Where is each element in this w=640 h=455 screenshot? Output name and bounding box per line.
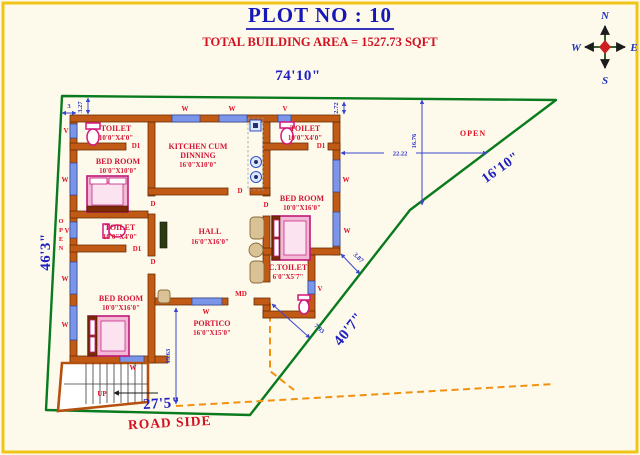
open-area-left-letter: E	[59, 236, 63, 243]
dim-16-76: 16.76	[411, 133, 418, 148]
bed-icon-bedroom-right	[272, 216, 310, 260]
plot-dim-top: 74'10"	[275, 68, 321, 84]
plot-dim-left: 46'3"	[38, 233, 54, 271]
door-label: D	[263, 201, 268, 209]
window-label: W	[62, 275, 69, 283]
window-top-2	[219, 115, 247, 122]
page-title: PLOT NO : 10	[248, 3, 392, 27]
svg-text:10'0"X10'0": 10'0"X10'0"	[99, 167, 137, 175]
plot-dim-right-lower: 40'7"	[331, 310, 367, 349]
room-bedroom-top-left: BED ROOM	[96, 157, 141, 166]
compass-south-label: S	[602, 75, 608, 87]
window-left-2	[70, 262, 77, 294]
page-subtitle: TOTAL BUILDING AREA = 1527.73 SQFT	[202, 35, 438, 49]
svg-text:10'0"X4'0": 10'0"X4'0"	[103, 233, 137, 241]
bed-icon-bedroom-top-left	[87, 176, 128, 212]
window-left-1	[70, 163, 77, 195]
vent-label: V	[63, 127, 68, 135]
bed-icon-bedroom-bottom-left	[88, 316, 129, 356]
room-c-toilet: C.TOILET	[269, 263, 308, 272]
vent-label: V	[317, 285, 322, 293]
plot-dim-bottom: 27'5"	[143, 395, 181, 413]
window-right-2	[333, 212, 340, 246]
svg-text:16'0"X10'0": 16'0"X10'0"	[179, 161, 217, 169]
svg-text:10'0"X16'0": 10'0"X16'0"	[283, 204, 321, 212]
main-door-label: MD	[235, 290, 247, 298]
open-area-right-label: OPEN	[460, 129, 486, 138]
room-kitchen: KITCHEN CUM	[169, 142, 228, 151]
window-label: W	[229, 105, 236, 113]
door1-label: D1	[317, 142, 326, 150]
dim-15-63: 15.63	[165, 348, 172, 363]
window-right-1	[333, 160, 340, 192]
vent-top	[278, 115, 291, 122]
svg-text:10'0"X4'0": 10'0"X4'0"	[288, 134, 322, 142]
vent-left-1	[70, 124, 77, 138]
window-left-3	[70, 306, 77, 340]
svg-text:10'0"X4'0": 10'0"X4'0"	[99, 134, 133, 142]
kitchen-sink-basin	[253, 123, 258, 128]
room-bedroom-right: BED ROOM	[280, 194, 325, 203]
svg-text:16'0"X15'0": 16'0"X15'0"	[193, 329, 231, 337]
door-leaf-icon	[160, 222, 167, 248]
floor-plan-page: PLOT NO : 10 TOTAL BUILDING AREA = 1527.…	[0, 0, 640, 455]
dim-3-87: 3.87	[352, 251, 366, 265]
open-area-left-letter: O	[58, 218, 63, 225]
dim-2-72: 2.72	[333, 102, 340, 113]
door1-label: D1	[132, 142, 141, 150]
kitchen-counter	[248, 118, 263, 190]
door-label: D	[150, 200, 155, 208]
plot-dim-right-upper: 16'10"	[479, 150, 522, 187]
floor-plan-drawing: PLOT NO : 10 TOTAL BUILDING AREA = 1527.…	[0, 0, 640, 455]
svg-text:6'0"X5'7": 6'0"X5'7"	[273, 273, 304, 281]
vent-ctoilet	[308, 281, 315, 294]
window-top-1	[172, 115, 200, 122]
toilet-icon-top-left	[86, 123, 100, 145]
open-area-left-letter: P	[59, 227, 63, 234]
door1-label: D1	[133, 245, 142, 253]
compass-north-label: N	[600, 10, 610, 22]
vent-left-2	[70, 222, 77, 238]
window-label: W	[182, 105, 189, 113]
compass-west-label: W	[571, 42, 582, 54]
room-toilet-top-left: TOILET	[101, 124, 132, 133]
window-hall-bottom	[192, 298, 222, 305]
compass-icon: N E S W	[571, 10, 638, 87]
room-toilet-mid-left: TOILET	[105, 223, 136, 232]
open-area-left-letter: N	[59, 245, 64, 252]
window-label: W	[344, 227, 351, 235]
svg-text:16'0"X16'0": 16'0"X16'0"	[191, 238, 229, 246]
door-label: D	[150, 258, 155, 266]
window-label: W	[62, 321, 69, 329]
vent-label: V	[64, 227, 69, 235]
dim-3: 3	[67, 103, 71, 110]
room-portico: PORTICO	[193, 319, 230, 328]
room-hall: HALL	[199, 227, 222, 236]
compass-center	[599, 40, 611, 54]
road-side-label: ROAD SIDE	[128, 413, 212, 432]
window-label: W	[62, 176, 69, 184]
svg-text:DINNING: DINNING	[180, 151, 216, 160]
window-label: W	[130, 364, 137, 372]
window-label: W	[343, 176, 350, 184]
stairs-up-label: UP	[97, 390, 107, 398]
vent-label: V	[282, 105, 287, 113]
svg-text:10'0"X16'0": 10'0"X16'0"	[102, 304, 140, 312]
window-label: W	[203, 308, 210, 316]
room-bedroom-bottom-left: BED ROOM	[99, 294, 144, 303]
compass-east-label: E	[629, 42, 637, 54]
door-label: D	[237, 187, 242, 195]
dim-3-27: 3.27	[77, 101, 84, 113]
toilet-icon-common	[298, 295, 310, 314]
dim-22-22: 22.22	[393, 151, 408, 158]
room-toilet-top-right: TOILET	[290, 124, 321, 133]
chair-icon	[158, 290, 170, 303]
road-dashed-line	[176, 384, 555, 406]
